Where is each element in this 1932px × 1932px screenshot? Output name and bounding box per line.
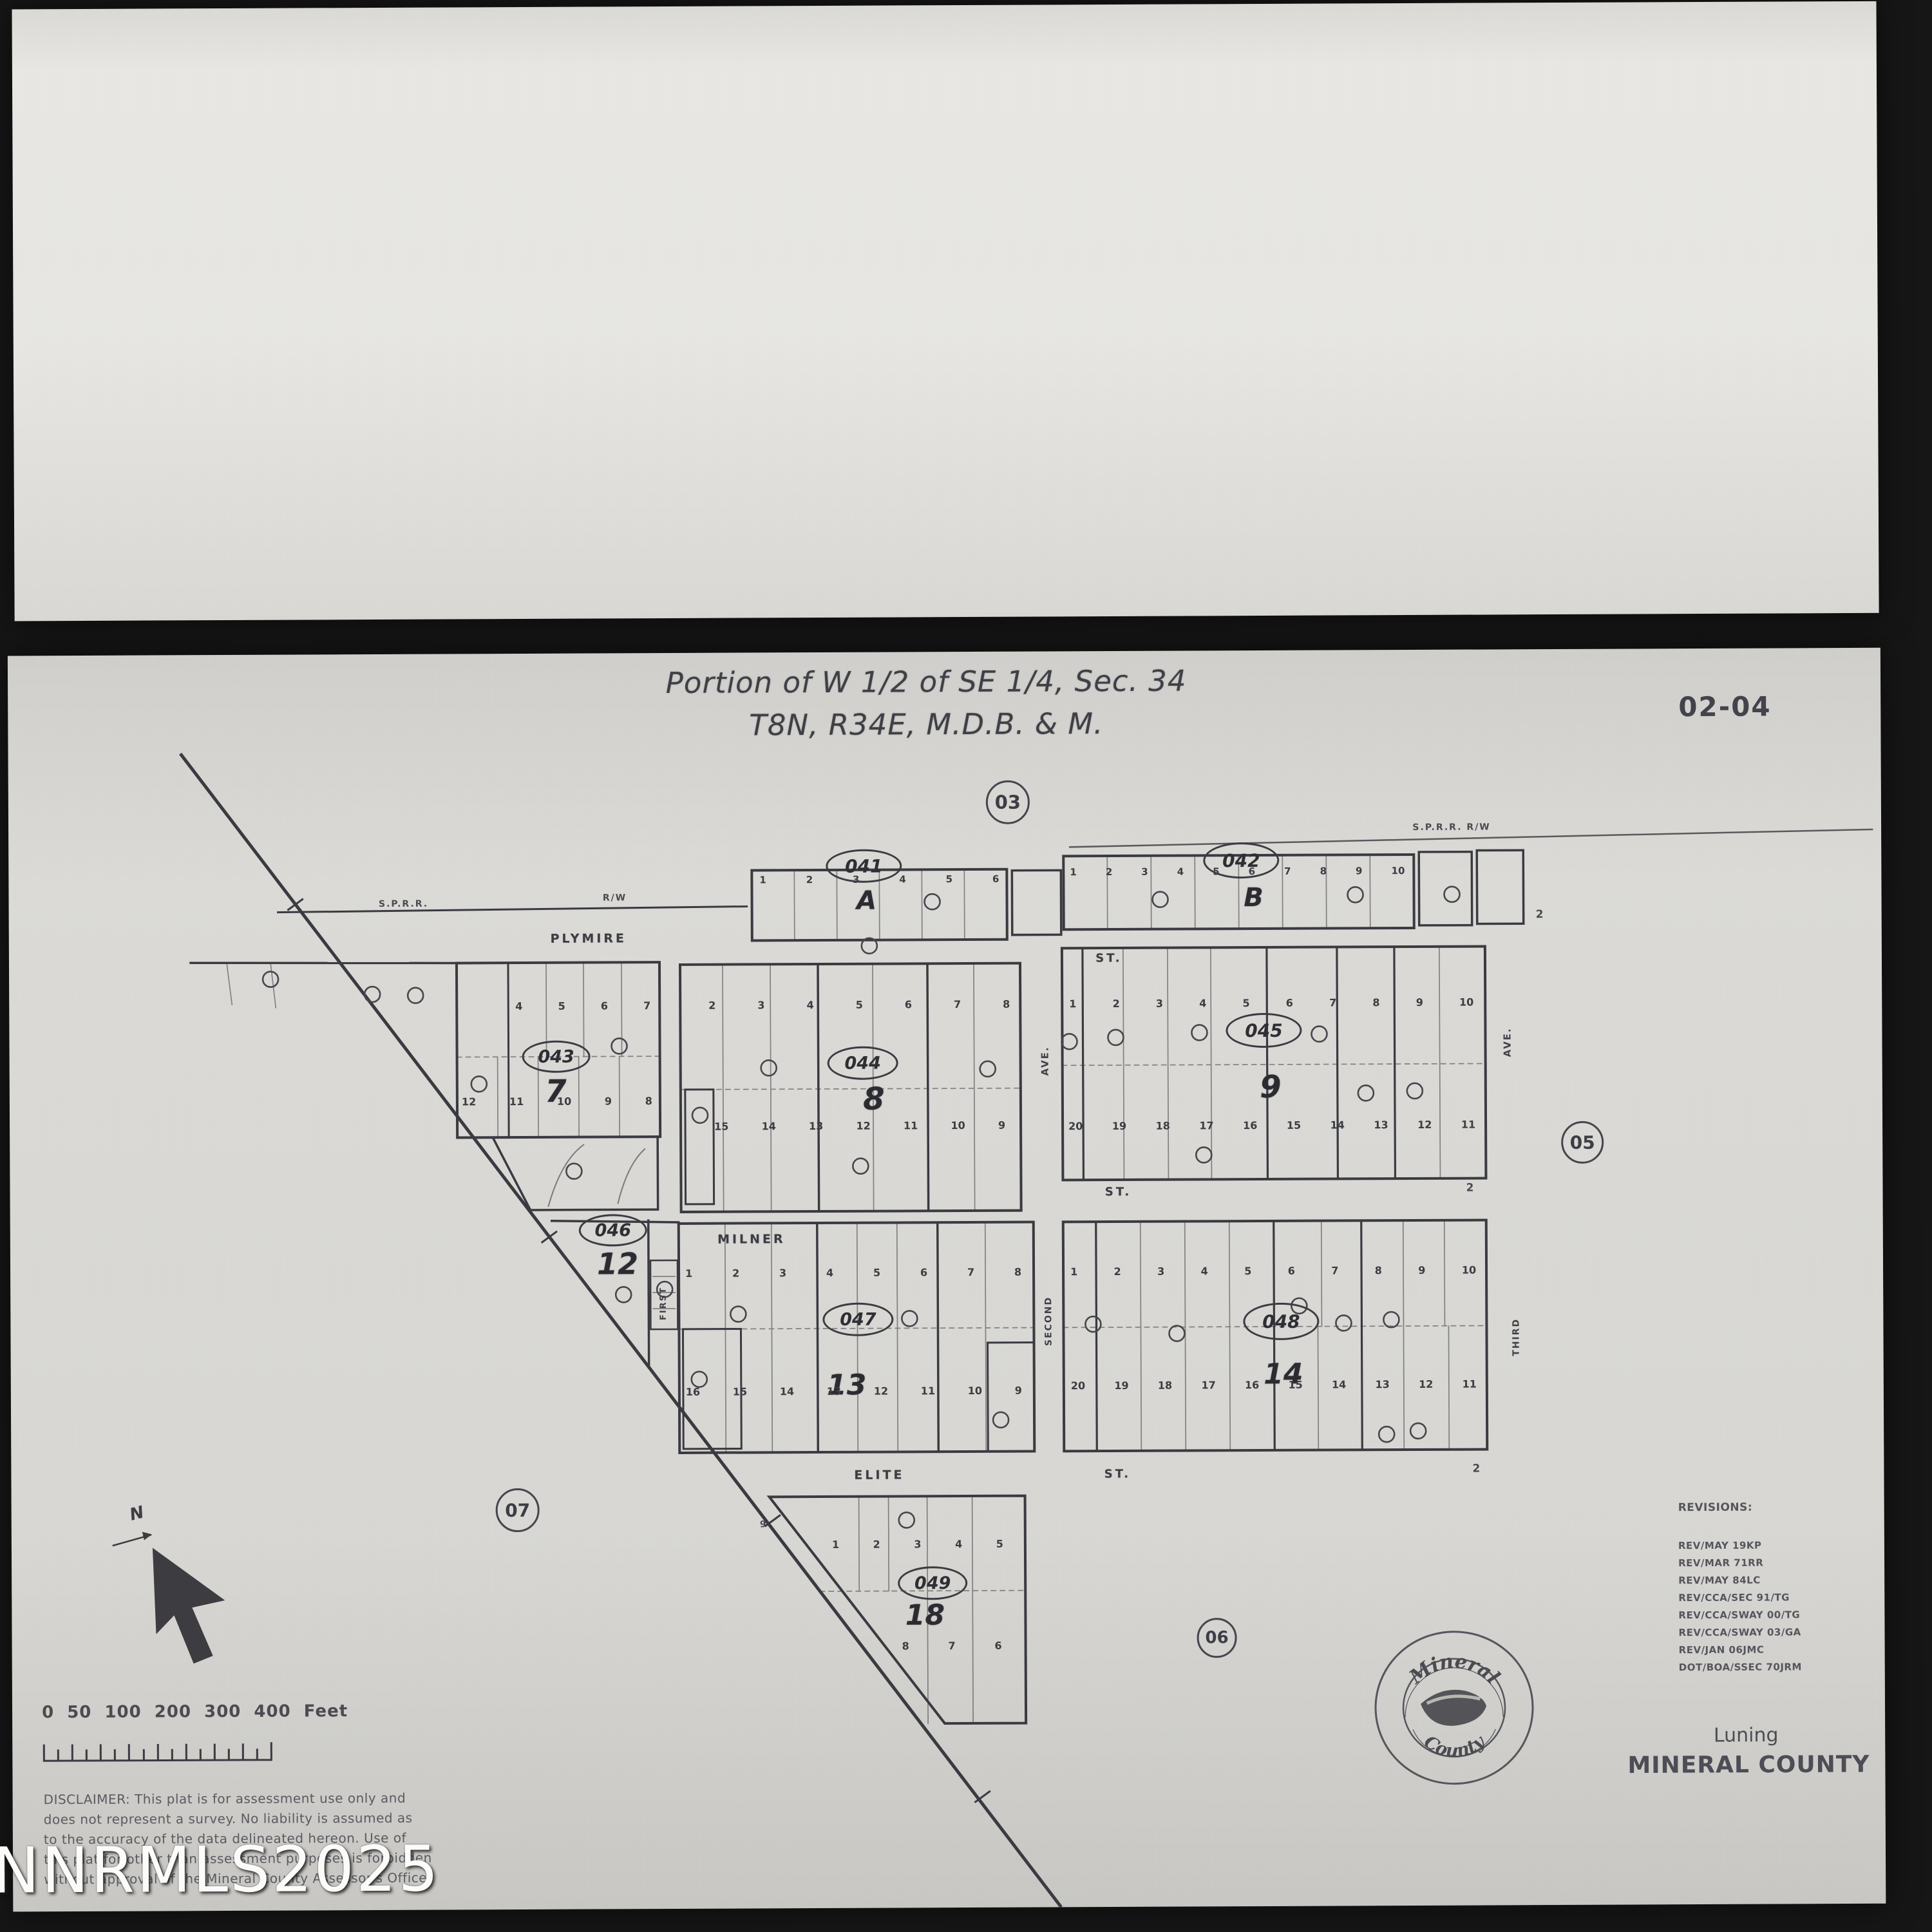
svg-text:County: County xyxy=(1420,1730,1490,1761)
lots-block-7-top: 4 5 6 7 xyxy=(515,1001,650,1012)
revision-entry: DOT/BOA/SSEC 70JRM xyxy=(1679,1661,1802,1673)
revision-entry: REV/CCA/SWAY 03/GA xyxy=(1678,1626,1801,1638)
label-third-ave: THIRD xyxy=(1511,1318,1521,1356)
junction-circle-06: 06 xyxy=(1197,1618,1236,1658)
block-13-notch-se xyxy=(988,1343,1035,1452)
block-label-12: 12 xyxy=(597,1246,638,1281)
railroad-line xyxy=(182,751,1061,1909)
block-label-8: 8 xyxy=(863,1081,885,1117)
lots-block-18-bottom: 8 7 6 xyxy=(902,1641,1002,1652)
label-rw: R/W xyxy=(603,893,627,903)
street-label-plymire: PLYMIRE xyxy=(551,931,627,946)
scale-ruler xyxy=(44,1743,271,1761)
lots-block-a: 1 2 3 4 5 6 xyxy=(759,875,999,885)
parcel-oval-044: 044 xyxy=(828,1046,898,1079)
block-a-annex xyxy=(1012,870,1061,934)
block-13-dividers xyxy=(817,1222,939,1452)
label-second-ave: SECOND xyxy=(1043,1296,1054,1346)
photographed-plat-document: Mineral County Portion of W 1/2 of SE 1/… xyxy=(0,0,1932,1932)
lots-block-14-top: 1 2 3 4 5 6 7 8 9 10 xyxy=(1070,1265,1476,1278)
lots-block-14-bottom: 20 19 18 17 16 15 14 13 12 11 xyxy=(1071,1379,1477,1392)
block-label-b: B xyxy=(1244,883,1264,913)
revision-entry: REV/CCA/SWAY 00/TG xyxy=(1678,1609,1800,1621)
lots-block-18-top: 1 2 3 4 5 xyxy=(832,1539,1003,1550)
lots-block-13-top: 1 2 3 4 5 6 7 8 xyxy=(685,1267,1021,1279)
mineral-county-seal: Mineral County xyxy=(1376,1631,1533,1784)
street-label-milner: MILNER xyxy=(717,1232,786,1246)
sprr-row-line xyxy=(278,906,747,912)
seal-top-text: Mineral xyxy=(1405,1650,1504,1689)
plymire-street-line xyxy=(191,961,457,964)
street-label-st-c: ST. xyxy=(1104,1467,1131,1481)
lot-lines xyxy=(226,855,1488,1727)
north-arrow-icon xyxy=(153,1548,225,1663)
street-label-st-b: ST. xyxy=(1105,1185,1132,1198)
revision-entry: REV/CCA/SEC 91/TG xyxy=(1678,1591,1790,1604)
page-title-line1: Portion of W 1/2 of SE 1/4, Sec. 34 xyxy=(666,664,1187,701)
lots-block-7-bottom: 12 11 10 9 8 xyxy=(462,1096,652,1107)
block-b-annex-2 xyxy=(1477,850,1523,923)
street-end-marker-9: 2 xyxy=(1466,1182,1475,1195)
revision-entry: REV/MAY 19KP xyxy=(1678,1540,1762,1552)
block-7-south-sliver xyxy=(493,1137,658,1210)
footer-county: MINERAL COUNTY xyxy=(1627,1751,1870,1779)
seal-bottom-text: County xyxy=(1420,1730,1490,1761)
lots-block-9-top: 1 2 3 4 5 6 7 8 9 10 xyxy=(1069,998,1473,1010)
sheet-number: 02-04 xyxy=(1678,691,1772,723)
disclaimer-line-2: does not represent a survey. No liabilit… xyxy=(44,1810,413,1827)
street-end-marker-elite: 9 xyxy=(760,1519,768,1529)
block-b-annex-1 xyxy=(1419,852,1472,925)
scale-bar-label: 0 50 100 200 300 400 Feet xyxy=(42,1701,348,1722)
revision-entry: REV/MAY 84LC xyxy=(1678,1575,1761,1587)
block-8-notch-lot xyxy=(685,1090,714,1204)
revision-entry: REV/JAN 06JMC xyxy=(1679,1644,1765,1656)
label-ave-b: AVE. xyxy=(1501,1027,1513,1057)
junction-circle-03: 03 xyxy=(986,781,1030,824)
block-label-18: 18 xyxy=(905,1599,945,1632)
parcel-oval-048: 048 xyxy=(1243,1303,1319,1341)
parcel-oval-046: 046 xyxy=(579,1214,647,1246)
revisions-header: REVISIONS: xyxy=(1678,1501,1753,1515)
block-9-dividers xyxy=(1083,947,1396,1180)
block-label-9: 9 xyxy=(1260,1069,1282,1105)
label-sprr-rw: S.P.R.R. R/W xyxy=(1412,822,1490,833)
leader-curves xyxy=(548,1144,645,1206)
disclaimer-line-1: DISCLAIMER: This plat is for assessment … xyxy=(44,1790,406,1807)
junction-circle-07: 07 xyxy=(496,1488,540,1532)
label-sprr: S.P.R.R. xyxy=(379,899,428,909)
parcel-oval-047: 047 xyxy=(822,1302,893,1336)
revision-entry: REV/MAR 71RR xyxy=(1678,1557,1763,1569)
street-label-st-a: ST. xyxy=(1095,951,1122,965)
north-arrowhead-icon xyxy=(142,1532,152,1540)
street-label-elite: ELITE xyxy=(854,1468,904,1482)
parcel-oval-043: 043 xyxy=(522,1041,590,1073)
label-ave-a: AVE. xyxy=(1039,1046,1051,1075)
lots-block-8-bottom: 15 14 13 12 11 10 9 xyxy=(714,1121,1005,1132)
block-18-outline xyxy=(770,1496,1027,1725)
lots-block-b: 1 2 3 4 5 6 7 8 9 10 xyxy=(1070,866,1405,877)
street-end-marker-b: 2 xyxy=(1536,908,1545,921)
page-title-line2: T8N, R34E, M.D.B. & M. xyxy=(749,706,1103,742)
footer-city: Luning xyxy=(1714,1724,1779,1747)
block-9-outline xyxy=(1062,946,1486,1180)
block-13-outline xyxy=(679,1222,1035,1453)
label-first-ave: FIRST xyxy=(659,1287,668,1320)
street-end-marker-14: 2 xyxy=(1472,1463,1481,1475)
block-12-east-line xyxy=(649,1220,649,1367)
mls-watermark: NNRMLS2025 xyxy=(0,1833,440,1908)
junction-circle-05: 05 xyxy=(1561,1121,1604,1164)
parcel-oval-045: 045 xyxy=(1226,1013,1302,1048)
block-7-divider xyxy=(508,963,509,1137)
parcel-oval-049: 049 xyxy=(898,1566,967,1600)
svg-text:Mineral: Mineral xyxy=(1405,1650,1504,1689)
lot-marker-icons xyxy=(262,887,1462,1531)
page-tilt-wrapper: Mineral County Portion of W 1/2 of SE 1/… xyxy=(0,0,1932,1932)
lots-block-8-top: 2 3 4 5 6 7 8 xyxy=(708,999,1010,1011)
lots-block-13-bottom: 16 15 14 13 12 11 10 9 xyxy=(686,1386,1022,1397)
lots-block-9-bottom: 20 19 18 17 16 15 14 13 12 11 xyxy=(1068,1120,1475,1132)
block-label-a: A xyxy=(857,886,876,916)
